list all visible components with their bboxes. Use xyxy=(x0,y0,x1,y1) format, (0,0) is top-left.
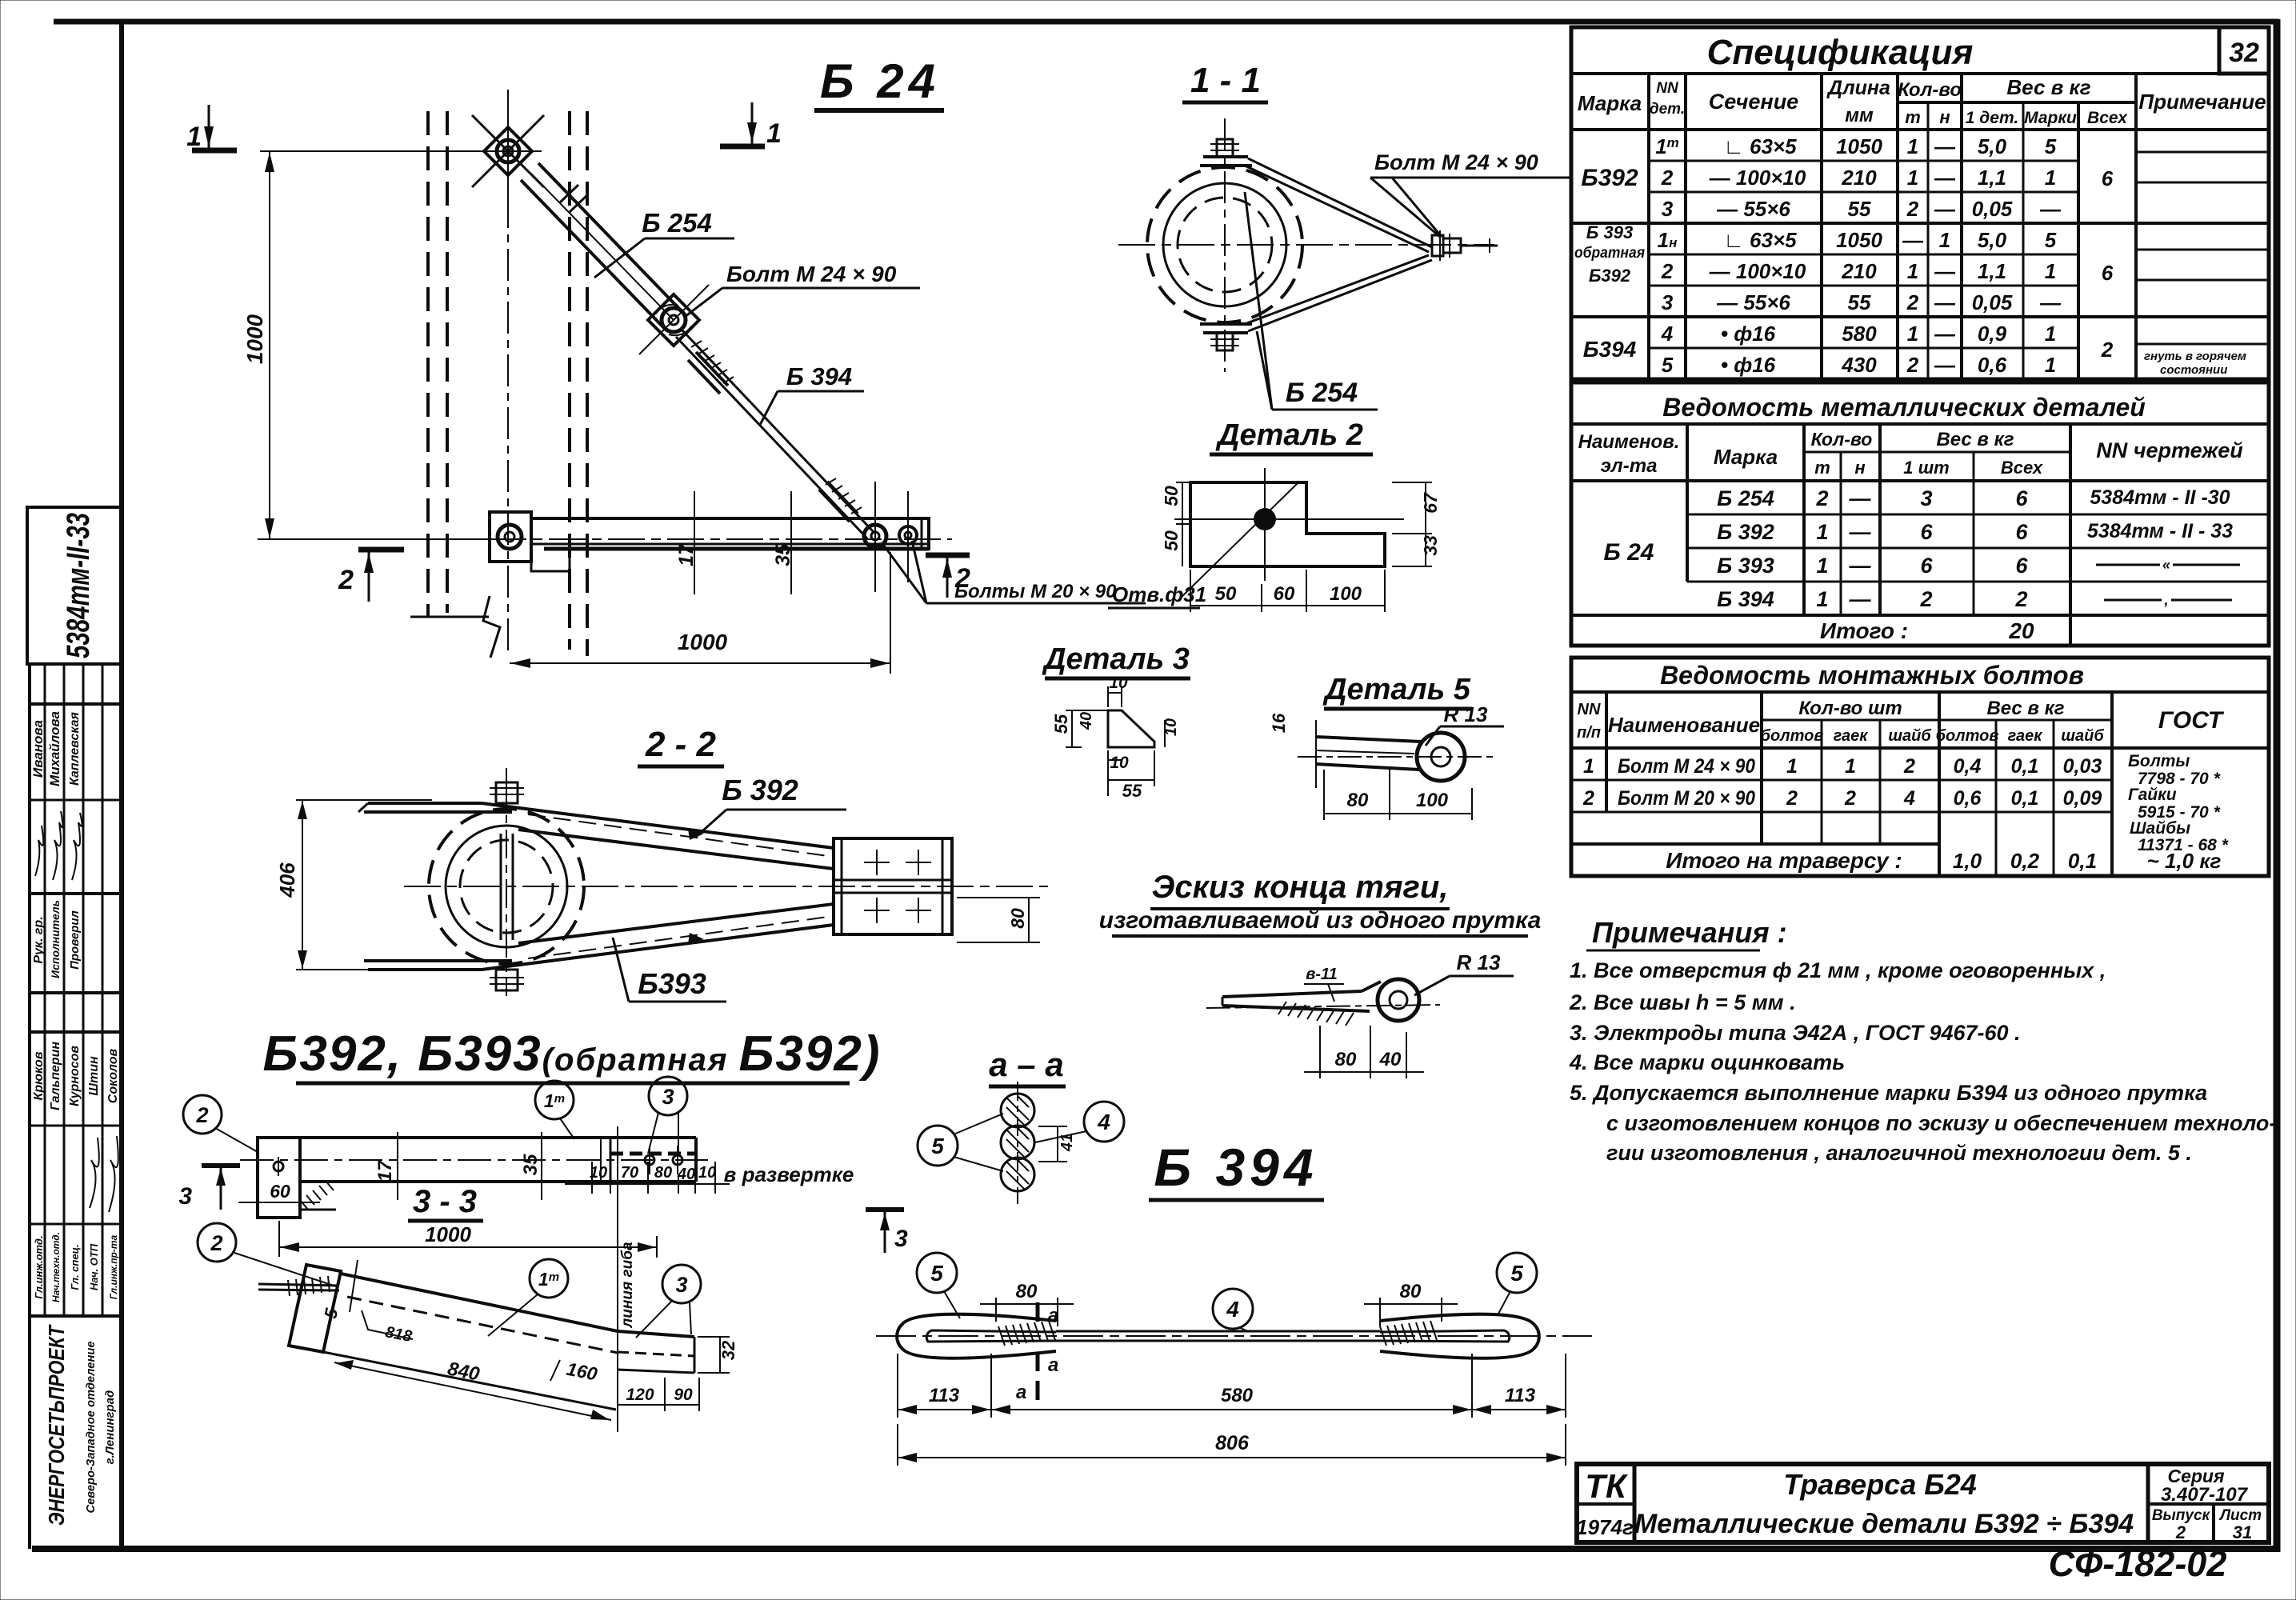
svg-text:3: 3 xyxy=(178,1183,192,1210)
svg-text:Вес в кг: Вес в кг xyxy=(1986,698,2064,719)
svg-text:Штин: Штин xyxy=(87,1056,101,1096)
svg-text:а: а xyxy=(1048,1354,1058,1376)
svg-text:3: 3 xyxy=(894,1226,908,1252)
svg-text:Курносов: Курносов xyxy=(68,1046,82,1106)
svg-text:1: 1 xyxy=(1907,166,1918,190)
svg-text:6: 6 xyxy=(2102,166,2114,190)
svg-text:67: 67 xyxy=(1420,492,1441,514)
svg-text:1: 1 xyxy=(1816,587,1828,611)
svg-text:210: 210 xyxy=(1841,259,1877,283)
svg-text:Соколов: Соколов xyxy=(106,1048,120,1103)
svg-text:Деталь 2: Деталь 2 xyxy=(1215,418,1363,452)
svg-text:0,05: 0,05 xyxy=(1972,290,2013,314)
svg-text:80: 80 xyxy=(1347,790,1369,811)
svg-text:1: 1 xyxy=(186,122,202,152)
svg-text:6: 6 xyxy=(2015,520,2028,544)
svg-text:32: 32 xyxy=(718,1340,738,1360)
svg-text:113: 113 xyxy=(1505,1385,1536,1406)
svg-text:Нач. ОТП: Нач. ОТП xyxy=(88,1243,100,1290)
svg-text:NN чертежей: NN чертежей xyxy=(2096,438,2243,462)
svg-text:2: 2 xyxy=(1582,787,1594,810)
svg-text:2: 2 xyxy=(195,1103,208,1127)
svg-text:6: 6 xyxy=(1920,520,1933,544)
svg-text:3: 3 xyxy=(1662,197,1674,221)
svg-text:100: 100 xyxy=(1416,790,1449,811)
svg-text:1т: 1т xyxy=(1655,134,1679,158)
svg-text:мм: мм xyxy=(1845,105,1874,126)
svg-text:шайб: шайб xyxy=(1888,727,1931,745)
svg-text:1 - 1: 1 - 1 xyxy=(1190,61,1261,100)
svg-text:Ведомость металлических: Ведомость металлических деталей xyxy=(1662,393,2146,422)
svg-text:Б 394: Б 394 xyxy=(1717,587,1774,611)
svg-text:Б394: Б394 xyxy=(1583,337,1637,362)
svg-text:Иванова: Иванова xyxy=(30,720,46,778)
svg-text:80: 80 xyxy=(1335,1049,1357,1070)
svg-text:5: 5 xyxy=(1510,1261,1523,1286)
svg-text:60: 60 xyxy=(270,1181,290,1202)
svg-text:Рук. гр.: Рук. гр. xyxy=(32,916,46,963)
svg-text:— 100×10: — 100×10 xyxy=(1709,166,1806,190)
svg-text:50: 50 xyxy=(1161,530,1182,551)
svg-text:1000: 1000 xyxy=(242,314,267,364)
svg-text:35: 35 xyxy=(520,1154,542,1175)
svg-text:—: — xyxy=(1849,520,1872,544)
svg-text:5: 5 xyxy=(931,1134,944,1158)
svg-text:R 13: R 13 xyxy=(1444,702,1488,726)
svg-text:0,6: 0,6 xyxy=(1978,353,2007,377)
svg-text:0,6: 0,6 xyxy=(1954,787,1982,810)
svg-text:— 55×6: — 55×6 xyxy=(1716,290,1790,314)
svg-text:Примечание: Примечание xyxy=(2138,90,2266,114)
svg-text:1: 1 xyxy=(1939,228,1950,252)
svg-text:580: 580 xyxy=(1842,322,1877,346)
svg-text:210: 210 xyxy=(1841,166,1877,190)
svg-text:2: 2 xyxy=(2101,338,2114,362)
svg-text:Б 392: Б 392 xyxy=(722,774,798,806)
svg-text:120: 120 xyxy=(626,1386,654,1404)
svg-text:Болт М 24 × 90: Болт М 24 × 90 xyxy=(1618,755,1755,778)
svg-text:Кол-во: Кол-во xyxy=(1898,79,1962,101)
svg-text:Михайлова: Михайлова xyxy=(47,711,62,786)
svg-text:Болты: Болты xyxy=(2128,752,2190,770)
svg-text:г.Ленинград: г.Ленинград xyxy=(103,1390,117,1465)
svg-text:Гл.инж.отд.: Гл.инж.отд. xyxy=(33,1235,45,1298)
svg-text:в развертке: в развертке xyxy=(724,1162,854,1186)
svg-text:∟ 63×5: ∟ 63×5 xyxy=(1723,134,1797,158)
svg-text:т: т xyxy=(1814,458,1830,478)
svg-text:н: н xyxy=(1854,458,1865,478)
svg-text:4: 4 xyxy=(1903,787,1915,810)
svg-text:2. Все швы h = 5 мм .: 2. Все швы h = 5 мм . xyxy=(1569,990,1796,1014)
svg-text:2: 2 xyxy=(2175,1522,2186,1542)
svg-text:1974г: 1974г xyxy=(1576,1515,1634,1539)
svg-text:3: 3 xyxy=(662,1085,674,1109)
svg-text:NN: NN xyxy=(1578,701,1601,718)
svg-text:Крюков: Крюков xyxy=(32,1051,46,1100)
svg-text:5,0: 5,0 xyxy=(1978,228,2007,252)
svg-text:Наименов.: Наименов. xyxy=(1578,431,1680,453)
svg-text:6: 6 xyxy=(2015,554,2028,578)
svg-text:Болт М 20 × 90: Болт М 20 × 90 xyxy=(1618,787,1755,810)
svg-text:Отв.ф31: Отв.ф31 xyxy=(1112,582,1206,606)
svg-text:10: 10 xyxy=(698,1164,716,1182)
svg-text:1,0: 1,0 xyxy=(1953,849,1982,873)
svg-text:0,9: 0,9 xyxy=(1978,322,2007,346)
svg-text:2: 2 xyxy=(1661,166,1674,190)
svg-text:Длина: Длина xyxy=(1826,77,1890,99)
svg-text:—: — xyxy=(1934,259,1956,283)
svg-text:5: 5 xyxy=(2045,228,2057,252)
svg-text:1: 1 xyxy=(1907,134,1918,158)
svg-text:50: 50 xyxy=(1215,583,1237,605)
svg-text:Кол-во: Кол-во xyxy=(1811,429,1873,450)
svg-text:3: 3 xyxy=(1662,290,1674,314)
svg-text:Гальперин: Гальперин xyxy=(49,1042,62,1110)
svg-text:5384тм - II - 33: 5384тм - II - 33 xyxy=(2087,520,2233,542)
svg-text:Вес в кг: Вес в кг xyxy=(1936,429,2014,450)
svg-text:эл-та: эл-та xyxy=(1601,455,1658,477)
svg-text:1. Все отверстия ф 21: 1. Все отверстия ф 21 мм , кроме оговоре… xyxy=(1570,958,2106,982)
svg-text:Деталь 3: Деталь 3 xyxy=(1042,642,1190,676)
svg-text:болтов: болтов xyxy=(1936,727,1999,745)
svg-text:Кол-во шт: Кол-во шт xyxy=(1798,698,1902,719)
svg-text:5: 5 xyxy=(1662,353,1674,377)
svg-text:50: 50 xyxy=(1161,486,1182,506)
svg-text:Всех: Всех xyxy=(2001,458,2043,478)
svg-text:2: 2 xyxy=(338,565,354,595)
svg-text:55: 55 xyxy=(1848,290,1871,314)
svg-text:1: 1 xyxy=(766,118,782,149)
svg-text:Спецификация: Спецификация xyxy=(1707,33,1974,72)
svg-text:4: 4 xyxy=(1097,1110,1110,1134)
svg-text:ТК: ТК xyxy=(1585,1467,1629,1505)
svg-text:3 - 3: 3 - 3 xyxy=(413,1184,477,1219)
svg-text:3.407-107: 3.407-107 xyxy=(2161,1484,2249,1506)
svg-text:—: — xyxy=(1849,587,1872,611)
svg-text:2: 2 xyxy=(1844,787,1856,810)
svg-text:Нач.техн.отд.: Нач.техн.отд. xyxy=(50,1232,62,1302)
svg-text:а – а: а – а xyxy=(989,1046,1063,1083)
svg-text:болтов: болтов xyxy=(1761,727,1824,745)
svg-text:Марки: Марки xyxy=(2024,109,2077,127)
svg-text:гаек: гаек xyxy=(1834,727,1869,745)
svg-text:R 13: R 13 xyxy=(1457,950,1501,974)
svg-text:17: 17 xyxy=(675,543,698,566)
svg-text:СФ-182-02: СФ-182-02 xyxy=(2049,1543,2227,1584)
svg-text:6: 6 xyxy=(1920,554,1933,578)
svg-text:Болт М 24 × 90: Болт М 24 × 90 xyxy=(1374,150,1538,174)
svg-text:17: 17 xyxy=(374,1159,396,1182)
svg-text:100: 100 xyxy=(1330,583,1362,605)
svg-text:Сечение: Сечение xyxy=(1709,90,1798,114)
svg-text:—: — xyxy=(1934,134,1956,158)
svg-text:Б393: Б393 xyxy=(638,967,706,1000)
svg-text:4: 4 xyxy=(1226,1297,1239,1322)
svg-text:Траверса Б24: Траверса Б24 xyxy=(1783,1468,1977,1501)
svg-text:—: — xyxy=(1934,166,1956,190)
svg-text:ГОСТ: ГОСТ xyxy=(2158,707,2225,734)
svg-text:линия гиба: линия гиба xyxy=(619,1242,636,1328)
svg-text:Металлические детали Б392 ÷: Металлические детали Б392 ÷ Б394 xyxy=(1634,1509,2134,1539)
svg-text:2: 2 xyxy=(1903,755,1915,778)
svg-text:20: 20 xyxy=(2008,618,2034,643)
svg-text:32: 32 xyxy=(2229,38,2259,68)
svg-text:35: 35 xyxy=(772,543,794,566)
svg-text:Б392, Б393(обратная Б392): Б392, Б393(обратная Б392) xyxy=(263,1026,882,1082)
svg-text:Всех: Всех xyxy=(2087,109,2128,127)
svg-text:40: 40 xyxy=(1379,1049,1402,1070)
svg-text:—: — xyxy=(2039,290,2062,314)
svg-text:—: — xyxy=(1849,486,1872,510)
svg-text:5: 5 xyxy=(2045,134,2057,158)
svg-text:— 100×10: — 100×10 xyxy=(1709,259,1806,283)
svg-text:4: 4 xyxy=(1661,322,1674,346)
svg-text:55: 55 xyxy=(1051,714,1071,734)
svg-text:т: т xyxy=(1905,107,1921,127)
svg-text:41: 41 xyxy=(1058,1134,1076,1152)
svg-text:Б 394: Б 394 xyxy=(1154,1138,1318,1197)
svg-text:55: 55 xyxy=(1122,781,1142,801)
svg-text:«: « xyxy=(2162,557,2170,573)
svg-text:1: 1 xyxy=(1907,259,1918,283)
svg-text:1т: 1т xyxy=(538,1269,559,1290)
svg-text:80: 80 xyxy=(1016,1281,1038,1302)
svg-text:1: 1 xyxy=(2045,322,2056,346)
svg-text:Б 394: Б 394 xyxy=(786,362,852,390)
svg-text:—: — xyxy=(1849,554,1872,578)
svg-text:406: 406 xyxy=(275,862,299,898)
svg-text:Примечания :: Примечания : xyxy=(1592,916,1787,949)
svg-text:с изготовлением концов по: с изготовлением концов по эскизу и обесп… xyxy=(1606,1111,2276,1135)
svg-text:2: 2 xyxy=(1786,787,1798,810)
svg-text:—: — xyxy=(1934,197,1956,221)
svg-text:40: 40 xyxy=(677,1166,695,1183)
svg-text:Вес в кг: Вес в кг xyxy=(2006,75,2090,99)
svg-text:1: 1 xyxy=(1786,755,1798,778)
svg-text:Б 393: Б 393 xyxy=(1586,222,1633,242)
svg-text:6: 6 xyxy=(2102,261,2114,285)
svg-text:—: — xyxy=(1934,322,1956,346)
svg-text:2: 2 xyxy=(210,1231,222,1255)
svg-text:2: 2 xyxy=(954,563,970,594)
svg-text:NN: NN xyxy=(1656,80,1679,97)
svg-text:Каплевская: Каплевская xyxy=(68,711,82,786)
svg-text:Наименование: Наименование xyxy=(1608,713,1760,737)
svg-text:Б 254: Б 254 xyxy=(1286,378,1358,408)
svg-text:Гайки: Гайки xyxy=(2128,786,2177,804)
svg-text:а: а xyxy=(1016,1382,1026,1403)
svg-text:160: 160 xyxy=(565,1358,599,1385)
svg-text:Б 254: Б 254 xyxy=(1717,486,1774,510)
svg-text:1н: 1н xyxy=(1658,228,1678,252)
svg-text:—: — xyxy=(2039,197,2062,221)
svg-text:3. Электроды типа Э42А: 3. Электроды типа Э42А , ГОСТ 9467-60 . xyxy=(1570,1021,2021,1045)
svg-text:1: 1 xyxy=(1816,520,1828,544)
svg-text:н: н xyxy=(1939,107,1950,127)
svg-text:Марка: Марка xyxy=(1578,91,1642,115)
svg-text:2: 2 xyxy=(1661,259,1674,283)
svg-text:1: 1 xyxy=(1583,755,1594,778)
svg-text:гии изготовления , аналогичн: гии изготовления , аналогичной технологи… xyxy=(1606,1141,2192,1165)
svg-text:Выпуск: Выпуск xyxy=(2152,1507,2211,1524)
svg-text:Гл. спец.: Гл. спец. xyxy=(69,1244,81,1290)
svg-text:2: 2 xyxy=(1906,290,1919,314)
svg-text:Исполнитель: Исполнитель xyxy=(49,900,62,978)
svg-text:5. Допускается выполнение: 5. Допускается выполнение марки Б394 из … xyxy=(1570,1081,2207,1105)
svg-text:—: — xyxy=(1934,290,1956,314)
svg-text:гаек: гаек xyxy=(2008,727,2043,745)
svg-text:Лист: Лист xyxy=(2218,1507,2262,1524)
svg-text:шайб: шайб xyxy=(2061,727,2104,745)
svg-text:1: 1 xyxy=(1907,322,1918,346)
svg-text:1050: 1050 xyxy=(1836,134,1882,158)
svg-text:16: 16 xyxy=(1269,713,1289,733)
svg-text:Б 24: Б 24 xyxy=(820,54,940,108)
svg-text:2: 2 xyxy=(1815,486,1828,510)
svg-text:1т: 1т xyxy=(544,1090,565,1111)
svg-text:,: , xyxy=(2163,592,2168,608)
svg-text:580: 580 xyxy=(1221,1385,1254,1406)
svg-text:430: 430 xyxy=(1841,353,1877,377)
svg-text:Шайбы: Шайбы xyxy=(2130,819,2190,838)
svg-text:• ф16: • ф16 xyxy=(1721,322,1776,346)
svg-text:Болт М 24 × 90: Болт М 24 × 90 xyxy=(726,262,897,286)
svg-text:10: 10 xyxy=(1109,674,1128,692)
svg-text:1: 1 xyxy=(2045,166,2056,190)
svg-text:5384тм - II -30: 5384тм - II -30 xyxy=(2090,486,2230,509)
svg-text:6: 6 xyxy=(2015,486,2028,510)
svg-text:80: 80 xyxy=(654,1164,672,1182)
svg-text:5: 5 xyxy=(930,1261,943,1286)
svg-text:Б 24: Б 24 xyxy=(1604,539,1654,566)
svg-text:2: 2 xyxy=(1919,587,1932,611)
svg-text:5,0: 5,0 xyxy=(1978,134,2007,158)
svg-text:1000: 1000 xyxy=(678,630,728,654)
svg-text:Эскиз конца тяги,: Эскиз конца тяги, xyxy=(1152,870,1449,905)
svg-text:Итого на траверсу :: Итого на траверсу : xyxy=(1666,848,1902,873)
svg-text:0,4: 0,4 xyxy=(1954,755,1982,778)
svg-text:2: 2 xyxy=(1906,353,1919,377)
svg-text:ЭНЕРГОСЕТЬПРОЕКТ: ЭНЕРГОСЕТЬПРОЕКТ xyxy=(44,1324,69,1526)
svg-text:в-11: в-11 xyxy=(1306,966,1338,983)
svg-text:31: 31 xyxy=(2233,1522,2252,1542)
svg-text:60: 60 xyxy=(1274,583,1295,605)
svg-text:—: — xyxy=(1902,228,1924,252)
svg-text:1: 1 xyxy=(1816,554,1828,578)
svg-text:Марка: Марка xyxy=(1714,445,1778,469)
svg-text:80: 80 xyxy=(1400,1281,1422,1302)
svg-text:1: 1 xyxy=(1845,755,1856,778)
svg-text:~ 1,0 кг: ~ 1,0 кг xyxy=(2147,849,2222,873)
svg-text:0,1: 0,1 xyxy=(2011,787,2039,810)
svg-text:1050: 1050 xyxy=(1836,228,1882,252)
svg-text:—: — xyxy=(1934,353,1956,377)
svg-text:дет.: дет. xyxy=(1650,101,1685,118)
svg-text:55: 55 xyxy=(1848,197,1871,221)
svg-text:3: 3 xyxy=(1920,486,1932,510)
svg-text:п/п: п/п xyxy=(1577,724,1601,742)
svg-text:0,1: 0,1 xyxy=(2068,849,2097,873)
svg-text:Северо-Западное отделение: Северо-Западное отделение xyxy=(84,1342,98,1514)
svg-text:∟ 63×5: ∟ 63×5 xyxy=(1723,228,1797,252)
svg-text:5384тм-II-33: 5384тм-II-33 xyxy=(61,513,96,658)
svg-text:Б 392: Б 392 xyxy=(1717,520,1774,544)
svg-text:90: 90 xyxy=(674,1386,693,1404)
svg-text:840: 840 xyxy=(446,1358,482,1386)
svg-text:Болты М 20 × 90: Болты М 20 × 90 xyxy=(954,581,1117,602)
svg-text:Итого :: Итого : xyxy=(1820,618,1908,643)
svg-text:10: 10 xyxy=(1162,718,1180,736)
svg-text:80: 80 xyxy=(1007,908,1028,929)
svg-text:1,1: 1,1 xyxy=(1978,166,2006,190)
svg-text:0,03: 0,03 xyxy=(2063,755,2102,778)
svg-text:Ведомость монтажных б: Ведомость монтажных болтов xyxy=(1660,661,2084,690)
svg-text:1: 1 xyxy=(2045,259,2056,283)
svg-text:1000: 1000 xyxy=(425,1222,471,1246)
svg-text:33: 33 xyxy=(1420,535,1441,556)
svg-text:Б392: Б392 xyxy=(1581,165,1638,191)
svg-text:1 шт: 1 шт xyxy=(1903,458,1949,478)
svg-text:обратная: обратная xyxy=(1574,245,1645,262)
svg-text:3: 3 xyxy=(675,1273,687,1297)
svg-text:Гл.инж.пр-та: Гл.инж.пр-та xyxy=(108,1234,119,1299)
svg-text:10: 10 xyxy=(590,1164,607,1182)
svg-text:40: 40 xyxy=(1078,712,1095,730)
svg-text:Проверил: Проверил xyxy=(68,910,82,969)
svg-text:1 дет.: 1 дет. xyxy=(1966,109,2018,127)
svg-text:гнуть в горячем: гнуть в горячем xyxy=(2144,350,2246,363)
svg-text:2 - 2: 2 - 2 xyxy=(645,725,717,764)
svg-text:70: 70 xyxy=(621,1164,638,1182)
svg-text:— 55×6: — 55×6 xyxy=(1716,197,1790,221)
svg-text:1,1: 1,1 xyxy=(1978,259,2006,283)
svg-text:Деталь 5: Деталь 5 xyxy=(1322,673,1471,706)
svg-text:5: 5 xyxy=(320,1306,342,1320)
svg-text:2: 2 xyxy=(1906,197,1919,221)
svg-text:0,1: 0,1 xyxy=(2011,755,2039,778)
svg-text:2: 2 xyxy=(2014,587,2027,611)
svg-text:806: 806 xyxy=(1215,1432,1250,1454)
svg-text:10: 10 xyxy=(1110,754,1129,772)
svg-text:Б392: Б392 xyxy=(1589,266,1631,286)
svg-text:4. Все марки оцинковат: 4. Все марки оцинковать xyxy=(1569,1050,1845,1074)
svg-text:Б 393: Б 393 xyxy=(1717,554,1774,578)
svg-text:113: 113 xyxy=(929,1385,960,1406)
svg-text:0,05: 0,05 xyxy=(1972,197,2013,221)
svg-text:1: 1 xyxy=(2045,353,2056,377)
svg-text:изготавливаемой из одного пр: изготавливаемой из одного прутка xyxy=(1099,907,1542,934)
svg-text:0,2: 0,2 xyxy=(2010,849,2040,873)
svg-text:0,09: 0,09 xyxy=(2063,787,2102,810)
svg-text:Б 254: Б 254 xyxy=(642,208,712,238)
svg-text:состоянии: состоянии xyxy=(2160,363,2227,377)
svg-text:• ф16: • ф16 xyxy=(1721,353,1776,377)
svg-text:а: а xyxy=(1048,1305,1058,1326)
